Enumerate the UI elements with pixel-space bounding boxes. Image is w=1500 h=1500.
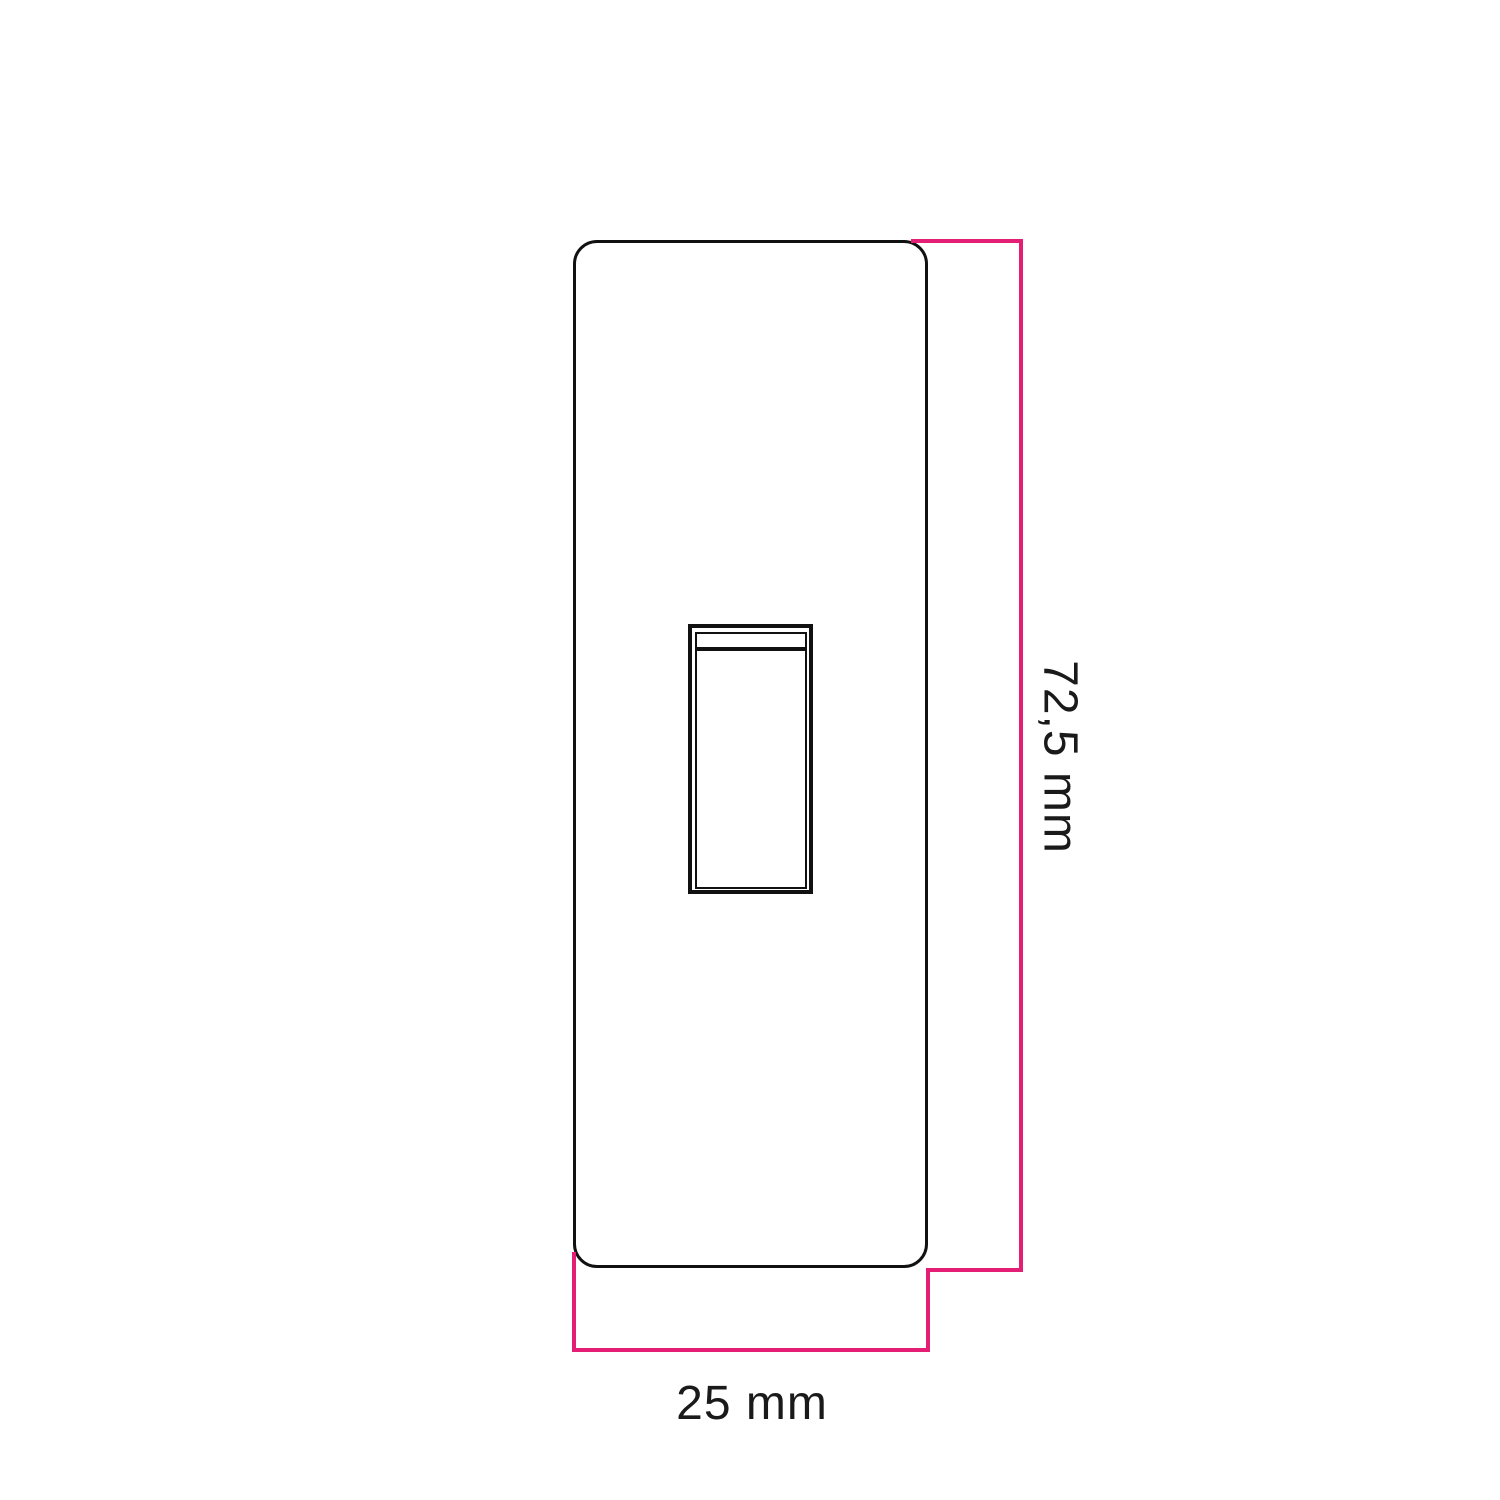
width-dimension-extension-left xyxy=(572,1252,576,1352)
width-dimension-extension-right xyxy=(926,1268,930,1352)
height-dimension-extension-bottom xyxy=(928,1268,1023,1272)
width-dimension-label: 25 mm xyxy=(573,1376,931,1431)
height-dimension-extension-top xyxy=(911,239,1023,243)
rocker-switch-top-edge-line xyxy=(696,647,806,651)
height-dimension-label: 72,5 mm xyxy=(1033,660,1088,854)
rocker-switch-inner-frame xyxy=(695,632,807,889)
dimension-drawing-canvas: 72,5 mm 25 mm xyxy=(0,0,1500,1500)
width-dimension-line xyxy=(572,1348,930,1352)
height-dimension-line xyxy=(1019,239,1023,1272)
